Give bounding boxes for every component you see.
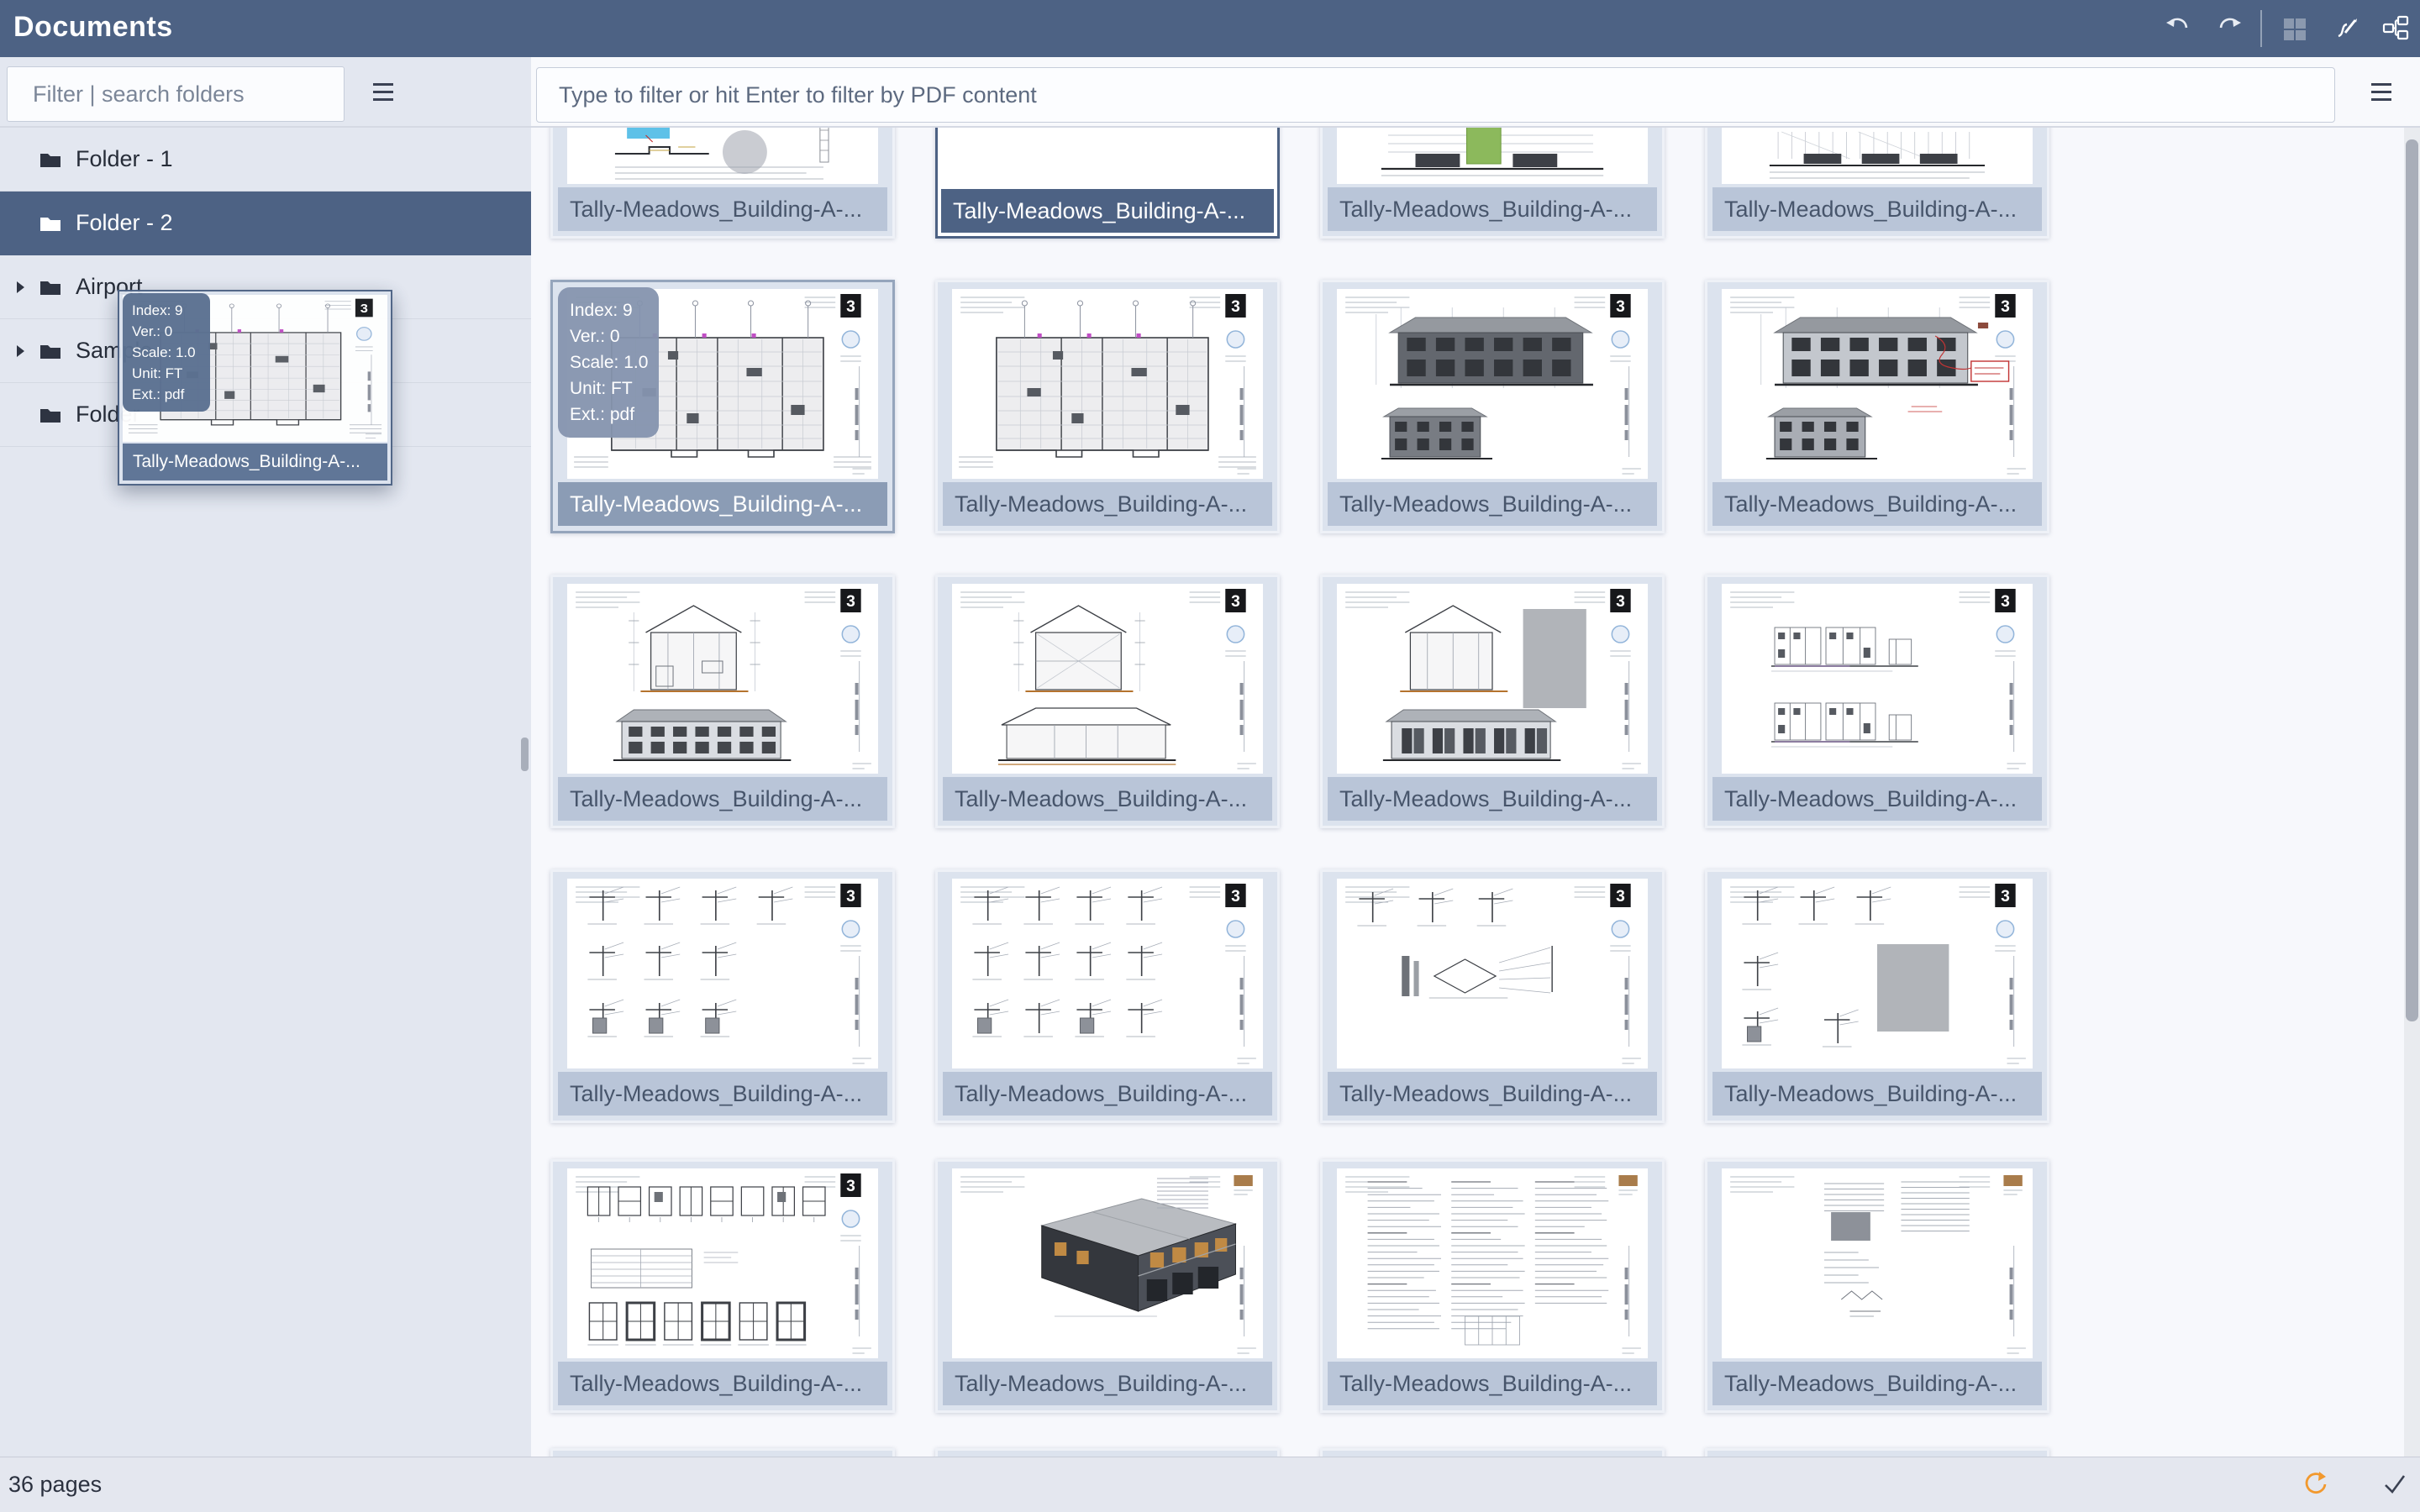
page-card-label: Tally-Meadows_Building-A-... — [943, 1362, 1272, 1405]
svg-text:3: 3 — [1616, 298, 1625, 316]
page-card-label: Tally-Meadows_Building-A-... — [558, 482, 887, 526]
header-divider — [2260, 10, 2262, 47]
sidebar-folder-label: Folder - 2 — [76, 210, 173, 236]
page-grid: Tally-Meadows_Building-A-...Tally-Meadow… — [531, 128, 2404, 1457]
app-header: Documents — [0, 0, 2420, 57]
page-thumbnail: 3 — [1722, 289, 2033, 479]
svg-text:3: 3 — [360, 302, 368, 316]
vertical-scrollbar[interactable] — [2404, 128, 2420, 1457]
status-bar: 36 pages — [0, 1457, 2420, 1512]
page-card[interactable]: 3Tally-Meadows_Building-A-... — [550, 575, 895, 828]
page-title: Documents — [13, 11, 173, 44]
sidebar-folder-item[interactable]: Folder - 1 — [0, 128, 531, 192]
page-card[interactable]: Tally-Meadows_Building-A-... — [935, 128, 1280, 239]
page-card[interactable]: 3Index: 9Ver.: 0Scale: 1.0Unit: FTExt.: … — [550, 280, 895, 533]
page-card[interactable]: 3Tally-Meadows_Building-A-... — [1705, 869, 2049, 1123]
page-thumbnail: 3 — [1337, 584, 1648, 774]
page-thumbnail: 3 — [1337, 879, 1648, 1068]
page-card[interactable]: 3Tally-Meadows_Building-A-... — [935, 869, 1280, 1123]
page-thumbnail: 3 — [952, 289, 1263, 479]
page-thumbnail — [1337, 1168, 1648, 1358]
svg-text:3: 3 — [2001, 593, 2010, 611]
sidebar-menu-icon[interactable] — [373, 83, 393, 102]
svg-text:3: 3 — [846, 593, 855, 611]
page-card-label: Tally-Meadows_Building-A-... — [943, 777, 1272, 821]
page-thumbnail: 3 — [952, 879, 1263, 1068]
signature-icon[interactable] — [2333, 14, 2361, 43]
page-card-label: Tally-Meadows_Building-A-... — [1712, 482, 2042, 526]
page-card-label: Tally-Meadows_Building-A-... — [558, 777, 887, 821]
page-thumbnail — [952, 1168, 1263, 1358]
page-thumbnail — [1722, 1168, 2033, 1358]
pages-link-icon[interactable] — [2381, 14, 2410, 43]
page-card[interactable]: 3Tally-Meadows_Building-A-... — [550, 1159, 895, 1413]
page-card-label: Tally-Meadows_Building-A-... — [1712, 1072, 2042, 1116]
page-card[interactable]: Tally-Meadows_Building-A-... — [1320, 128, 1665, 239]
documents-app: Documents — [0, 0, 2420, 1512]
page-card-label: Tally-Meadows_Building-A-... — [1328, 777, 1657, 821]
page-thumbnail: 3 — [567, 879, 878, 1068]
page-card[interactable] — [935, 1448, 1280, 1457]
page-thumbnail — [941, 128, 1274, 184]
svg-text:3: 3 — [846, 1178, 855, 1195]
page-card-label: Tally-Meadows_Building-A-... — [558, 187, 887, 231]
svg-text:3: 3 — [1231, 298, 1240, 316]
redo-icon[interactable] — [2215, 14, 2244, 43]
page-card[interactable]: 3Tally-Meadows_Building-A-... — [935, 575, 1280, 828]
page-card[interactable]: 3Tally-Meadows_Building-A-... — [550, 869, 895, 1123]
page-card[interactable]: 3Tally-Meadows_Building-A-... — [1320, 869, 1665, 1123]
page-info-tooltip: Index: 9Ver.: 0Scale: 1.0Unit: FTExt.: p… — [123, 293, 210, 412]
folder-icon — [39, 405, 64, 425]
page-card[interactable]: 3Tally-Meadows_Building-A-... — [935, 280, 1280, 533]
page-card[interactable]: 3Tally-Meadows_Building-A-... — [1320, 575, 1665, 828]
page-card-label: Tally-Meadows_Building-A-... — [941, 189, 1274, 233]
page-card[interactable]: 3Tally-Meadows_Building-A-... — [1320, 280, 1665, 533]
grid-view-icon[interactable] — [2284, 18, 2306, 40]
page-card-label: Tally-Meadows_Building-A-... — [943, 482, 1272, 526]
svg-text:3: 3 — [2001, 888, 2010, 906]
page-count: 36 pages — [8, 1472, 102, 1498]
page-card-label: Tally-Meadows_Building-A-... — [1328, 187, 1657, 231]
page-card-label: Tally-Meadows_Building-A-... — [558, 1072, 887, 1116]
toolbar — [0, 57, 2420, 128]
sidebar-folder-label: Folder - 1 — [76, 146, 173, 172]
page-thumbnail: 3 — [567, 584, 878, 774]
page-card[interactable]: Tally-Meadows_Building-A-... — [1320, 1159, 1665, 1413]
svg-text:3: 3 — [1616, 888, 1625, 906]
page-thumbnail: 3 — [1722, 879, 2033, 1068]
svg-text:3: 3 — [1616, 593, 1625, 611]
svg-text:3: 3 — [846, 888, 855, 906]
folder-icon — [39, 150, 64, 170]
undo-icon[interactable] — [2164, 14, 2192, 43]
chevron-right-icon-slot — [13, 344, 39, 359]
page-card[interactable] — [550, 1448, 895, 1457]
page-card-label: Tally-Meadows_Building-A-... — [1712, 777, 2042, 821]
page-thumbnail: 3 — [1722, 584, 2033, 774]
page-card-label: Tally-Meadows_Building-A-... — [1712, 1362, 2042, 1405]
page-card-label: Tally-Meadows_Building-A-... — [1328, 482, 1657, 526]
page-card[interactable]: Tally-Meadows_Building-A-... — [935, 1159, 1280, 1413]
page-card[interactable] — [1705, 1448, 2049, 1457]
page-card[interactable]: 3Tally-Meadows_Building-A-... — [1705, 280, 2049, 533]
page-card-label: Tally-Meadows_Building-A-... — [558, 1362, 887, 1405]
sidebar-scrollbar-thumb[interactable] — [521, 738, 529, 771]
page-card[interactable]: Tally-Meadows_Building-A-... — [1705, 1159, 2049, 1413]
drag-ghost-card: 3 Index: 9Ver.: 0Scale: 1.0Unit: FTExt.:… — [118, 290, 392, 486]
folder-icon — [39, 213, 64, 234]
page-card[interactable]: Tally-Meadows_Building-A-... — [550, 128, 895, 239]
page-thumbnail: 3 — [1337, 289, 1648, 479]
check-icon[interactable] — [2381, 1471, 2408, 1498]
page-thumbnail: 3 — [952, 584, 1263, 774]
svg-text:3: 3 — [1231, 888, 1240, 906]
pdf-content-search-input[interactable] — [536, 67, 2335, 123]
page-card[interactable]: Tally-Meadows_Building-A-... — [1705, 128, 2049, 239]
page-thumbnail — [567, 128, 878, 184]
page-card-label: Tally-Meadows_Building-A-... — [1328, 1362, 1657, 1405]
folder-icon — [39, 277, 64, 297]
chevron-right-icon[interactable] — [13, 344, 27, 359]
folder-icon — [39, 341, 64, 361]
page-card-label: Tally-Meadows_Building-A-... — [1712, 187, 2042, 231]
page-card-label: Tally-Meadows_Building-A-... — [943, 1072, 1272, 1116]
page-card-label: Tally-Meadows_Building-A-... — [1328, 1072, 1657, 1116]
page-card[interactable]: 3Tally-Meadows_Building-A-... — [1705, 575, 2049, 828]
drag-ghost-label: Tally-Meadows_Building-A-... — [123, 444, 387, 480]
page-thumbnail — [1722, 128, 2033, 184]
vertical-scrollbar-thumb[interactable] — [2406, 139, 2418, 1021]
page-info-tooltip: Index: 9Ver.: 0Scale: 1.0Unit: FTExt.: p… — [558, 287, 659, 438]
folder-filter-input[interactable] — [7, 66, 345, 122]
svg-text:3: 3 — [846, 298, 855, 316]
page-thumbnail — [1337, 128, 1648, 184]
refresh-icon[interactable] — [2302, 1471, 2329, 1498]
chevron-right-icon[interactable] — [13, 280, 27, 295]
page-card[interactable] — [1320, 1448, 1665, 1457]
grid-menu-icon[interactable] — [2371, 83, 2391, 102]
page-thumbnail: 3 — [567, 1168, 878, 1358]
chevron-right-icon-slot — [13, 280, 39, 295]
sidebar-folder-item[interactable]: Folder - 2 — [0, 192, 531, 255]
svg-text:3: 3 — [1231, 593, 1240, 611]
svg-text:3: 3 — [2001, 298, 2010, 316]
